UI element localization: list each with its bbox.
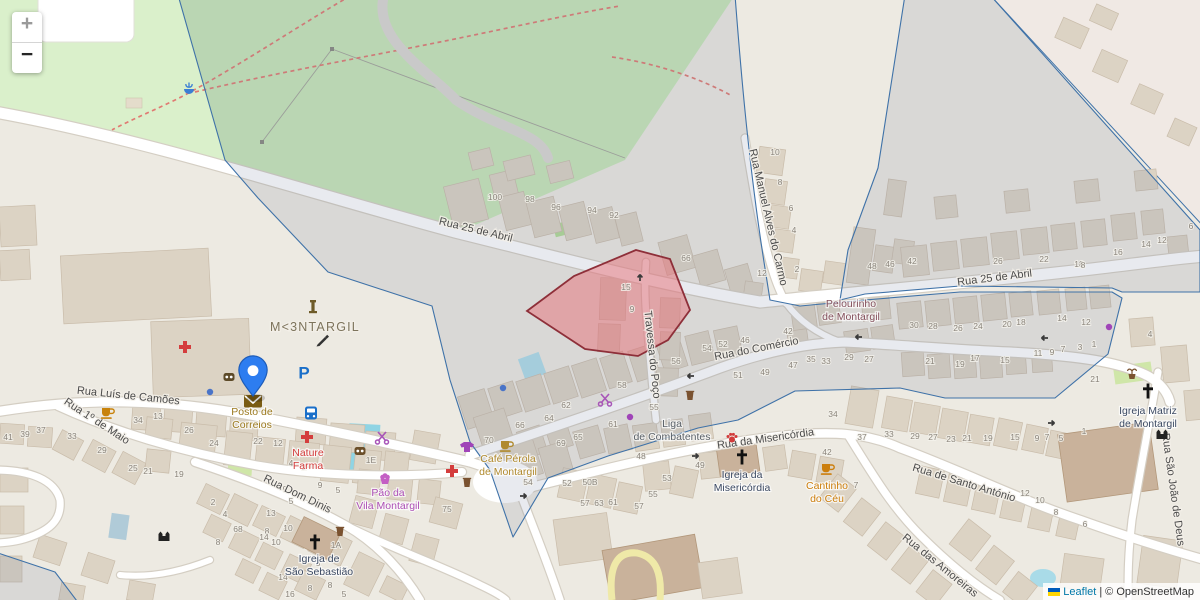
house-number: 4 <box>792 225 797 235</box>
house-number: 26 <box>184 425 194 435</box>
house-number: 53 <box>662 473 672 483</box>
house-number: 64 <box>544 413 554 423</box>
house-number: 61 <box>608 419 618 429</box>
map-canvas[interactable]: 1009896949266159545642465247353329274951… <box>0 0 1200 600</box>
house-number: 66 <box>681 253 691 263</box>
house-number: 13 <box>266 508 276 518</box>
house-number: 12 <box>1020 488 1030 498</box>
house-number: 19 <box>174 469 184 479</box>
house-number: 29 <box>97 445 107 455</box>
house-number: 52 <box>718 339 728 349</box>
building <box>762 445 787 472</box>
house-number: 25 <box>128 463 138 473</box>
house-number: 10 <box>770 147 780 157</box>
shop-icon[interactable] <box>224 373 235 381</box>
leaflet-link[interactable]: Leaflet <box>1063 586 1096 598</box>
building <box>1160 345 1189 383</box>
house-number: 15 <box>621 282 631 292</box>
house-number: 10 <box>271 537 281 547</box>
house-number: 54 <box>702 343 712 353</box>
house-number: 5 <box>336 485 341 495</box>
house-number: 69 <box>556 438 566 448</box>
house-number: 28 <box>928 321 938 331</box>
house-number: 48 <box>636 451 646 461</box>
house-number: 42 <box>783 326 793 336</box>
optician-icon[interactable] <box>355 447 366 455</box>
house-number: 1A <box>331 540 342 550</box>
house-number: 49 <box>695 460 705 470</box>
house-number: 41 <box>3 432 13 442</box>
house-number: 42 <box>907 256 917 266</box>
house-number: 92 <box>609 210 619 220</box>
building <box>788 450 816 480</box>
parking-icon[interactable]: P <box>298 364 309 383</box>
house-number: 6 <box>1083 519 1088 529</box>
attribution-separator: | <box>1099 586 1102 598</box>
house-number: 4 <box>223 509 228 519</box>
house-number: 33 <box>67 431 77 441</box>
house-number: 16 <box>285 589 295 599</box>
poi-dot-icon <box>500 385 506 391</box>
house-number: 14 <box>1057 313 1067 323</box>
svg-text:P: P <box>298 364 309 383</box>
house-number: 27 <box>928 432 938 442</box>
house-number: 3 <box>1078 342 1083 352</box>
house-number: 11 <box>1034 348 1043 358</box>
house-number: 94 <box>587 205 597 215</box>
house-number: 9 <box>318 480 323 490</box>
house-number: 70 <box>484 435 494 445</box>
house-number: 24 <box>973 321 983 331</box>
house-number: 24 <box>209 438 219 448</box>
house-number: 8 <box>1081 260 1086 270</box>
house-number: 66 <box>515 420 525 430</box>
poi-label: Pelourinhode Montargil <box>822 298 880 323</box>
house-number: 19 <box>955 359 965 369</box>
house-number: 55 <box>648 489 658 499</box>
house-number: 96 <box>551 202 561 212</box>
map-view: 1009896949266159545642465247353329274951… <box>0 0 1200 600</box>
building <box>0 506 24 534</box>
house-number: 12 <box>273 438 283 448</box>
building <box>823 261 846 286</box>
house-number: 63 <box>594 498 604 508</box>
house-number: 12 <box>757 268 767 278</box>
house-number: 2 <box>211 497 216 507</box>
bus-stop-icon[interactable] <box>305 407 317 420</box>
house-number: 29 <box>844 352 854 362</box>
zoom-in-button[interactable]: + <box>12 12 42 43</box>
zoom-control: + − <box>12 12 42 73</box>
house-number: 9 <box>1050 347 1055 357</box>
house-number: 7 <box>1061 344 1066 354</box>
house-number: 9 <box>630 304 635 314</box>
house-number: 8 <box>308 583 313 593</box>
house-number: 5 <box>1059 433 1064 443</box>
house-number: 6 <box>789 203 794 213</box>
house-number: 30 <box>909 320 919 330</box>
building <box>845 386 879 428</box>
osm-attribution: © OpenStreetMap <box>1105 586 1194 598</box>
poi-label: Igreja daMisericórdia <box>714 469 771 494</box>
poi-label: Cantinhodo Céu <box>806 480 848 505</box>
house-number: 14 <box>259 532 269 542</box>
house-number: 23 <box>946 434 956 444</box>
house-number: 65 <box>573 432 583 442</box>
house-number: 42 <box>822 447 832 457</box>
house-number: 98 <box>525 194 535 204</box>
building <box>60 248 211 324</box>
house-number: 26 <box>993 256 1003 266</box>
house-number: 57 <box>634 501 644 511</box>
place-label: M<3NTARGIL <box>270 320 360 334</box>
house-number: 21 <box>143 466 153 476</box>
house-number: 58 <box>617 380 627 390</box>
poi-label: NatureFarma <box>292 447 324 472</box>
building <box>881 396 912 432</box>
house-number: 12 <box>1081 317 1091 327</box>
house-number: 5 <box>342 589 347 599</box>
house-number: 14 <box>1141 239 1151 249</box>
house-number: 39 <box>20 429 30 439</box>
poi-label: Igreja Matrizde Montargil <box>1119 405 1177 430</box>
poi-label: Café Pérolade Montargil <box>479 453 537 478</box>
house-number: 21 <box>925 356 935 366</box>
house-number: 22 <box>253 436 263 446</box>
building <box>151 318 252 397</box>
house-number: 10 <box>283 523 293 533</box>
house-number: 15 <box>1010 432 1020 442</box>
house-number: 100 <box>488 192 502 202</box>
house-number: 37 <box>36 425 46 435</box>
house-number: 2 <box>795 264 800 274</box>
house-number: 7 <box>1045 432 1050 442</box>
house-number: 52 <box>562 478 572 488</box>
house-number: 61 <box>608 497 618 507</box>
building <box>0 205 37 247</box>
house-number: 8 <box>216 537 221 547</box>
house-number: 27 <box>864 354 874 364</box>
poi-dot-icon <box>207 389 213 395</box>
house-number: 7 <box>854 480 859 490</box>
house-number: 46 <box>885 259 895 269</box>
house-number: 51 <box>733 370 743 380</box>
house-number: 1 <box>1082 426 1087 436</box>
house-number: 16 <box>1113 247 1123 257</box>
building <box>1184 389 1200 420</box>
house-number: 21 <box>1090 374 1100 384</box>
house-number: 26 <box>953 323 963 333</box>
house-number: 34 <box>828 409 838 419</box>
house-number: 10 <box>1035 495 1045 505</box>
poi-dot-icon <box>1106 324 1112 330</box>
house-number: 1 <box>1092 339 1097 349</box>
house-number: 17 <box>970 353 980 363</box>
ukraine-flag-icon <box>1048 588 1060 596</box>
house-number: 12 <box>1157 235 1167 245</box>
house-number: 33 <box>884 429 894 439</box>
poi-label: Posto deCorreios <box>231 406 273 431</box>
house-number: 34 <box>133 415 143 425</box>
house-number: 56 <box>671 356 681 366</box>
house-number: 50B <box>582 477 597 487</box>
house-number: 18 <box>1016 317 1026 327</box>
house-number: 62 <box>561 400 571 410</box>
house-number: 33 <box>821 356 831 366</box>
house-number: 1E <box>366 455 377 465</box>
house-number: 4 <box>1148 329 1153 339</box>
house-number: 29 <box>910 431 920 441</box>
house-number: 9 <box>1035 433 1040 443</box>
house-number: 21 <box>962 433 972 443</box>
house-number: 19 <box>983 433 993 443</box>
house-number: 37 <box>857 432 867 442</box>
house-number: 15 <box>1000 355 1010 365</box>
house-number: 22 <box>1039 254 1049 264</box>
house-number: 68 <box>233 524 243 534</box>
house-number: 8 <box>328 580 333 590</box>
house-number: 8 <box>1054 507 1059 517</box>
poi-dot-icon <box>627 414 633 420</box>
house-number: 48 <box>867 261 877 271</box>
house-number: 35 <box>806 354 816 364</box>
house-number: 55 <box>649 402 659 412</box>
house-number: 8 <box>778 177 783 187</box>
house-number: 20 <box>1002 319 1012 329</box>
house-number: 75 <box>442 504 452 514</box>
house-number: 54 <box>523 477 533 487</box>
house-number: 47 <box>788 360 798 370</box>
house-number: 13 <box>153 411 163 421</box>
zoom-out-button[interactable]: − <box>12 43 42 73</box>
house-number: 57 <box>580 498 590 508</box>
attribution-bar: Leaflet | © OpenStreetMap <box>1043 583 1200 600</box>
building <box>0 249 31 281</box>
house-number: 6 <box>1189 221 1194 231</box>
building <box>698 557 743 598</box>
house-number: 49 <box>760 367 770 377</box>
